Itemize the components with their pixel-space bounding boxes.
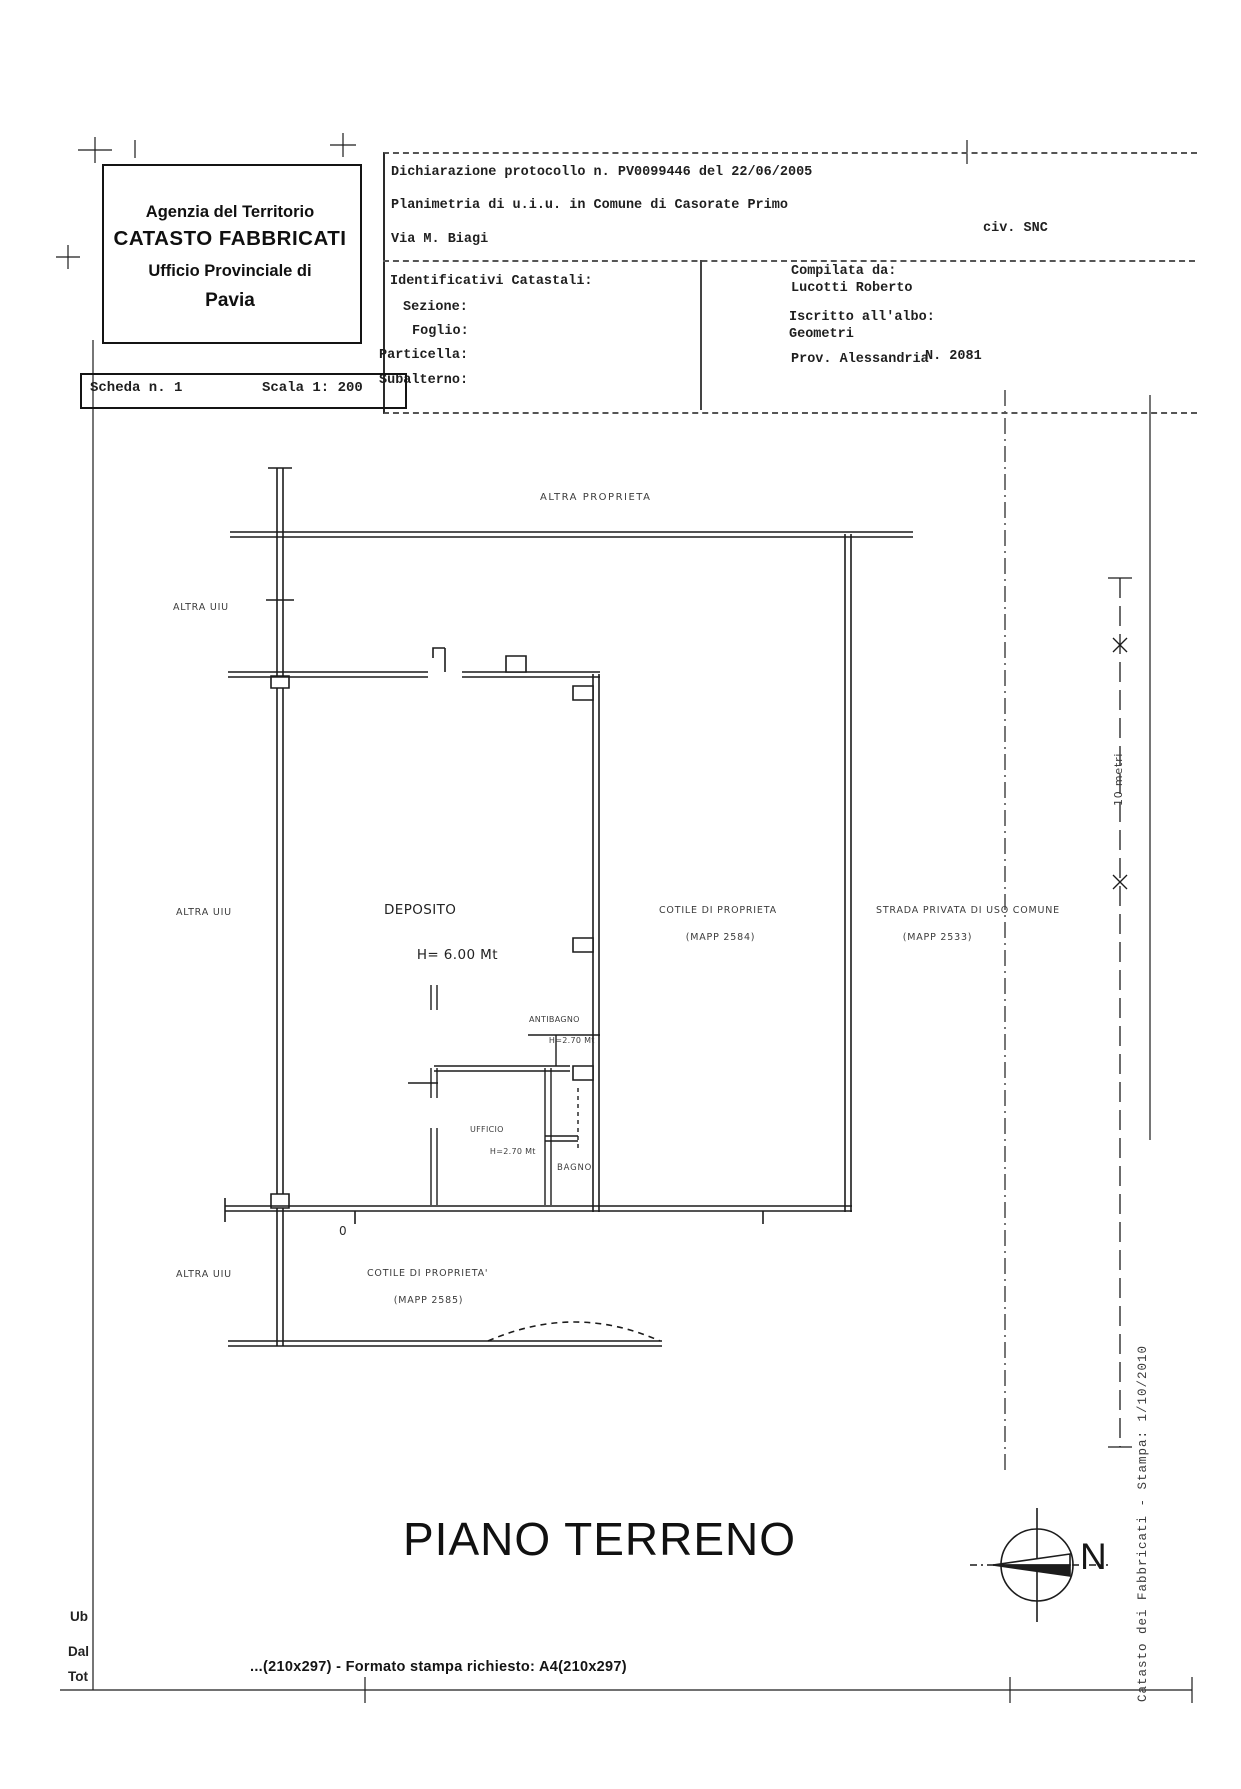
cortile1-mapp: (MAPP 2584): [686, 932, 756, 943]
declaration-column-divider: [700, 260, 702, 410]
cortile2-name: COTILE DI PROPRIETA': [367, 1268, 488, 1279]
ufficio-name: UFFICIO: [470, 1125, 504, 1134]
agency-line4: Pavia: [102, 290, 358, 312]
scala-value: Scala 1: 200: [262, 380, 363, 396]
strada-name: STRADA PRIVATA DI USO COMUNE: [876, 905, 1060, 916]
deposito-height: H= 6.00 Mt: [417, 947, 498, 963]
street-line: Via M. Biagi: [391, 232, 488, 247]
compilata-label: Compilata da:: [791, 264, 896, 279]
margin-fragment-3: Tot: [68, 1669, 88, 1684]
scheda-number: Scheda n. 1: [90, 380, 182, 396]
albo-number: N. 2081: [925, 349, 982, 364]
strada-label: STRADA PRIVATA DI USO COMUNE (MAPP 2533): [876, 904, 1060, 944]
planimetria-line: Planimetria di u.i.u. in Comune di Casor…: [391, 198, 788, 213]
cadastral-sheet: Agenzia del Territorio CATASTO FABBRICAT…: [0, 0, 1241, 1789]
particella-label: Particella:: [379, 348, 468, 363]
boundary-walls: [225, 468, 913, 1346]
foglio-label: Foglio:: [412, 324, 469, 339]
compilata-name: Lucotti Roberto: [791, 281, 913, 296]
print-format-line: ...(210x297) - Formato stampa richiesto:…: [250, 1659, 627, 1675]
deposito-label: DEPOSITO H= 6.00 Mt: [384, 899, 498, 966]
sezione-label: Sezione:: [403, 300, 468, 315]
scale-ruler: [1108, 578, 1132, 1447]
altra-uiu-label-1: ALTRA UIU: [173, 602, 229, 613]
antibagno-height: H=2.70 Mt: [549, 1036, 595, 1045]
albo-label: Iscritto all'albo:: [789, 310, 935, 325]
identificativi-title: Identificativi Catastali:: [390, 274, 593, 289]
prov-label: Prov. Alessandria: [791, 352, 929, 367]
agency-line3: Ufficio Provinciale di: [102, 262, 358, 281]
zero-mark: 0: [339, 1224, 347, 1238]
agency-line2: CATASTO FABBRICATI: [102, 227, 358, 251]
north-label: N: [1080, 1536, 1107, 1578]
agency-header-box: [102, 164, 362, 344]
altra-uiu-label-2: ALTRA UIU: [176, 907, 232, 918]
cortile1-label: COTILE DI PROPRIETA (MAPP 2584): [659, 904, 777, 944]
albo-value: Geometri: [789, 327, 854, 342]
protocol-line: Dichiarazione protocollo n. PV0099446 de…: [391, 165, 812, 180]
cortile2-mapp: (MAPP 2585): [394, 1295, 464, 1306]
ufficio-height: H=2.70 Mt: [490, 1147, 536, 1156]
cortile2-label: COTILE DI PROPRIETA' (MAPP 2585): [367, 1267, 488, 1307]
margin-fragment-2: Dal: [68, 1644, 89, 1659]
declaration-row-divider: [383, 260, 1195, 262]
antibagno-label: ANTIBAGNO H=2.70 Mt: [529, 1015, 595, 1046]
bagno-label: BAGNO: [557, 1163, 592, 1173]
ruler-label: 10 metri: [1112, 716, 1125, 806]
agency-line1: Agenzia del Territorio: [102, 203, 358, 222]
civ-value: civ. SNC: [983, 221, 1048, 236]
sidebar-rotated-text: Catasto dei Fabbricati - Stampa: 1/10/20…: [1136, 1142, 1150, 1702]
cortile1-name: COTILE DI PROPRIETA: [659, 905, 777, 916]
ufficio-label: UFFICIO H=2.70 Mt: [470, 1124, 536, 1158]
altra-uiu-label-3: ALTRA UIU: [176, 1269, 232, 1280]
antibagno-name: ANTIBAGNO: [529, 1015, 580, 1024]
strada-mapp: (MAPP 2533): [903, 932, 973, 943]
deposito-name: DEPOSITO: [384, 902, 456, 918]
floor-title: PIANO TERRENO: [403, 1512, 796, 1566]
margin-fragment-1: Ub: [70, 1609, 88, 1624]
altra-proprieta-label: ALTRA PROPRIETA: [540, 492, 651, 503]
